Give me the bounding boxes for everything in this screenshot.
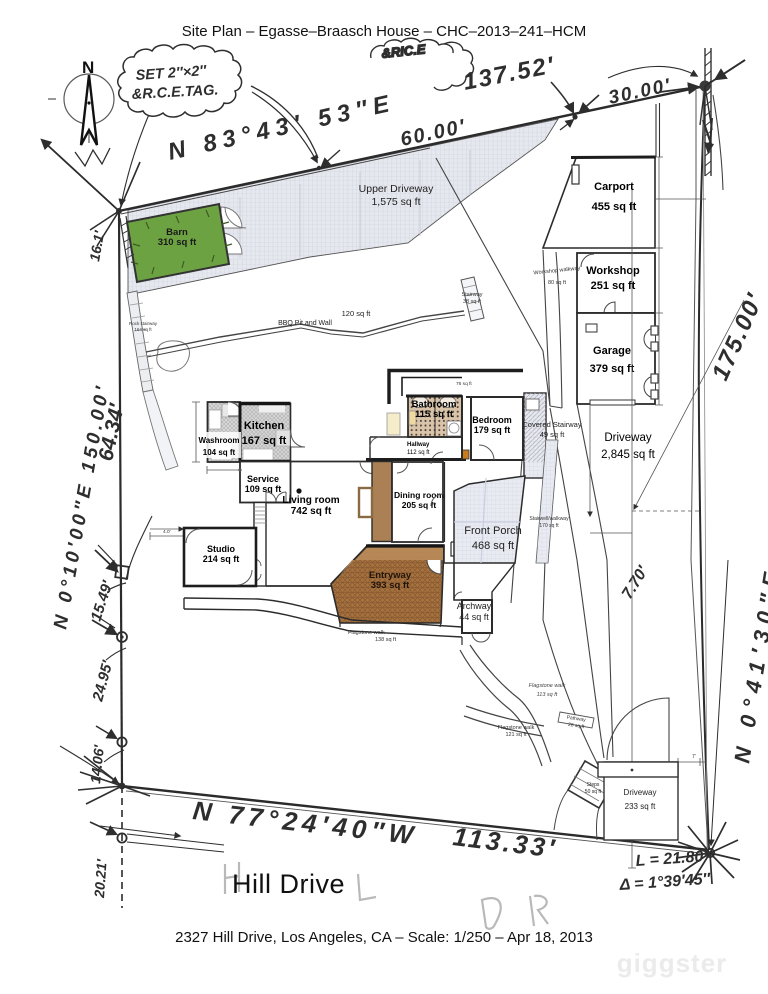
svg-text:Flagstone walk: Flagstone walk	[498, 725, 535, 731]
svg-text:120 sq ft: 120 sq ft	[342, 309, 372, 318]
svg-text:233 sq ft: 233 sq ft	[625, 802, 656, 811]
svg-text:Studio: Studio	[207, 544, 235, 554]
svg-text:115 sq ft: 115 sq ft	[415, 409, 454, 420]
svg-text:4.0': 4.0'	[163, 529, 171, 535]
svg-text:Stairwell/walkway: Stairwell/walkway	[529, 516, 569, 522]
svg-text:Hill Drive: Hill Drive	[232, 869, 345, 899]
svg-text:Front Porch: Front Porch	[464, 525, 521, 537]
svg-text:Archway: Archway	[457, 601, 492, 611]
svg-text:164 sq ft: 164 sq ft	[134, 327, 152, 332]
svg-text:38 sq ft: 38 sq ft	[463, 299, 482, 305]
svg-text:Living room: Living room	[282, 495, 339, 506]
svg-text:121 sq ft: 121 sq ft	[505, 732, 527, 738]
svg-text:Carport: Carport	[594, 181, 634, 193]
svg-text:Service: Service	[247, 474, 279, 484]
svg-text:Stairway: Stairway	[461, 292, 482, 298]
svg-text:Driveway: Driveway	[624, 788, 657, 797]
svg-text:Flagstone walk: Flagstone walk	[529, 683, 566, 689]
svg-text:104 sq ft: 104 sq ft	[203, 448, 236, 457]
svg-text:BBQ Pit and Wall: BBQ Pit and Wall	[278, 320, 332, 327]
svg-text:214 sq ft: 214 sq ft	[203, 554, 240, 564]
svg-text:Bedroom: Bedroom	[472, 415, 512, 425]
svg-text:Dining room: Dining room	[394, 490, 444, 500]
svg-text:Kitchen: Kitchen	[244, 420, 285, 432]
svg-text:49 sq ft: 49 sq ft	[540, 430, 566, 439]
svg-text:Steps: Steps	[587, 782, 600, 788]
svg-text:20.21′: 20.21′	[91, 858, 110, 899]
svg-text:Flagstone walk: Flagstone walk	[348, 630, 385, 636]
svg-text:2327 Hill Drive, Los Angeles,: 2327 Hill Drive, Los Angeles, CA – Scale…	[175, 929, 593, 946]
svg-text:2,845 sq ft: 2,845 sq ft	[601, 449, 656, 461]
svg-text:1,575 sq ft: 1,575 sq ft	[371, 196, 420, 208]
svg-text:80 sq ft: 80 sq ft	[548, 280, 567, 286]
svg-text:Washroom: Washroom	[198, 436, 239, 445]
svg-text:76 sq ft: 76 sq ft	[456, 381, 472, 387]
svg-text:Garage: Garage	[593, 345, 631, 357]
svg-text:170 sq ft: 170 sq ft	[539, 523, 559, 529]
svg-text:giggster: giggster	[617, 948, 728, 978]
svg-text:7': 7'	[692, 754, 696, 760]
svg-text:310 sq ft: 310 sq ft	[158, 237, 197, 248]
svg-text:Upper Driveway: Upper Driveway	[359, 183, 434, 195]
svg-text:179 sq ft: 179 sq ft	[474, 425, 511, 435]
svg-text:Hallway: Hallway	[407, 442, 430, 448]
svg-text:251 sq ft: 251 sq ft	[591, 280, 636, 292]
svg-text:455 sq ft: 455 sq ft	[592, 201, 637, 213]
svg-text:113 sq ft: 113 sq ft	[537, 692, 558, 698]
svg-text:468 sq ft: 468 sq ft	[472, 540, 514, 552]
svg-text:109 sq ft: 109 sq ft	[245, 484, 282, 494]
svg-text:Driveway: Driveway	[604, 432, 652, 444]
svg-text:742 sq ft: 742 sq ft	[291, 506, 332, 517]
svg-text:Covered Stairway: Covered Stairway	[522, 420, 581, 429]
svg-text:Rock stairway: Rock stairway	[129, 321, 158, 326]
svg-text:138 sq ft: 138 sq ft	[375, 637, 397, 643]
svg-text:112 sq ft: 112 sq ft	[407, 450, 430, 456]
svg-text:N: N	[82, 58, 94, 77]
svg-text:44 sq ft: 44 sq ft	[459, 612, 489, 622]
svg-text:50 sq ft: 50 sq ft	[585, 789, 602, 795]
svg-text:393 sq ft: 393 sq ft	[371, 580, 410, 591]
svg-text:Site Plan – Egasse–Braasch Hou: Site Plan – Egasse–Braasch House – CHC–2…	[182, 23, 586, 40]
svg-text:379 sq ft: 379 sq ft	[590, 363, 635, 375]
svg-text:167 sq ft: 167 sq ft	[242, 435, 287, 447]
